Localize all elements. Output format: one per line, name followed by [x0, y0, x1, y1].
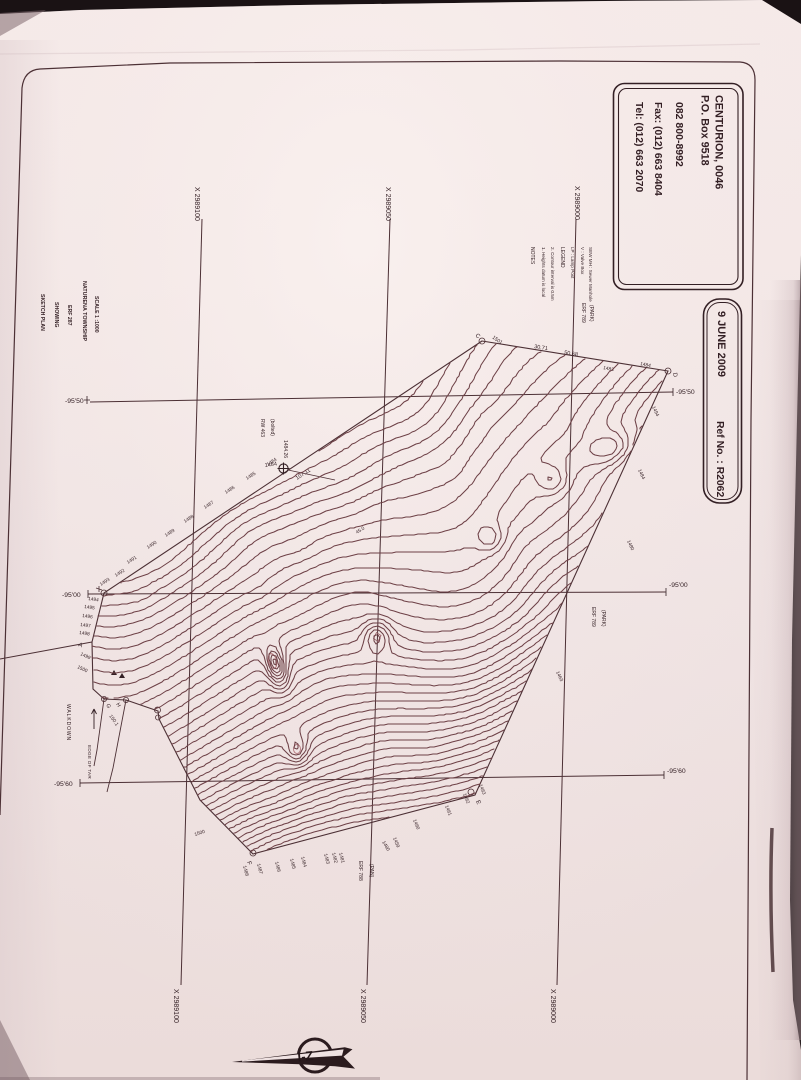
svg-text:Tel: (012) 663 2070: Tel: (012) 663 2070	[633, 102, 644, 193]
svg-text:SHOWING: SHOWING	[53, 302, 59, 327]
svg-text:EDGE OF TAR: EDGE OF TAR	[87, 745, 92, 779]
svg-text:(bolted): (bolted)	[269, 419, 275, 436]
svg-text:-95′00: -95′00	[669, 582, 688, 589]
svg-text:-95′50: -95′50	[65, 398, 84, 405]
svg-text:(PARK): (PARK)	[588, 305, 594, 322]
svg-text:ERF 789: ERF 789	[590, 607, 596, 627]
svg-text:RW 463: RW 463	[259, 419, 265, 437]
svg-text:ERF 789: ERF 789	[580, 303, 586, 323]
svg-text:V : Valve Box: V : Valve Box	[580, 247, 585, 275]
svg-text:1. Heights datum is local: 1. Heights datum is local	[541, 247, 546, 297]
svg-text:CENTURION, 0046: CENTURION, 0046	[713, 95, 725, 189]
svg-text:(PARK): (PARK)	[600, 610, 606, 627]
svg-text:X 2989100: X 2989100	[193, 187, 200, 221]
svg-text:SEW MH : Sewer Manhole: SEW MH : Sewer Manhole	[588, 247, 593, 302]
svg-text:LEGEND: LEGEND	[559, 247, 565, 268]
svg-text:WALKDOWN: WALKDOWN	[65, 704, 71, 741]
svg-text:Fax: (012) 663 8404: Fax: (012) 663 8404	[652, 102, 663, 196]
svg-text:Ref No. : R2062: Ref No. : R2062	[714, 421, 725, 497]
svg-text:ERF 287: ERF 287	[66, 305, 72, 326]
svg-text:2. Contour interval is 0.5m: 2. Contour interval is 0.5m	[550, 247, 555, 301]
svg-text:-95′50: -95′50	[676, 389, 695, 396]
svg-text:1484.26: 1484.26	[282, 440, 288, 458]
svg-text:I-Z: I-Z	[297, 1048, 314, 1065]
svg-text:SKETCH PLAN: SKETCH PLAN	[39, 294, 45, 331]
svg-text:082 800-8992: 082 800-8992	[673, 102, 685, 167]
svg-text:X 2989000: X 2989000	[549, 989, 556, 1023]
svg-text:SCALE 1 :1000: SCALE 1 :1000	[93, 296, 99, 333]
svg-text:NATURENA TOWNSHIP: NATURENA TOWNSHIP	[81, 281, 87, 341]
svg-text:-95′60: -95′60	[667, 768, 686, 775]
svg-text:-95′00: -95′00	[62, 592, 81, 599]
svg-text:(PAN): (PAN)	[368, 864, 374, 878]
svg-text:X 2989050: X 2989050	[359, 989, 366, 1023]
svg-text:X 2989100: X 2989100	[172, 989, 179, 1023]
svg-text:X 2989000: X 2989000	[573, 186, 580, 220]
svg-text:ERF 788: ERF 788	[357, 861, 363, 881]
svg-text:-95′60: -95′60	[54, 781, 73, 788]
svg-text:NOTES: NOTES	[529, 247, 535, 265]
svg-text:9 JUNE 2009: 9 JUNE 2009	[715, 311, 727, 377]
svg-text:P.O. Box 9518: P.O. Box 9518	[699, 95, 711, 166]
svg-text:X 2989050: X 2989050	[384, 187, 391, 221]
